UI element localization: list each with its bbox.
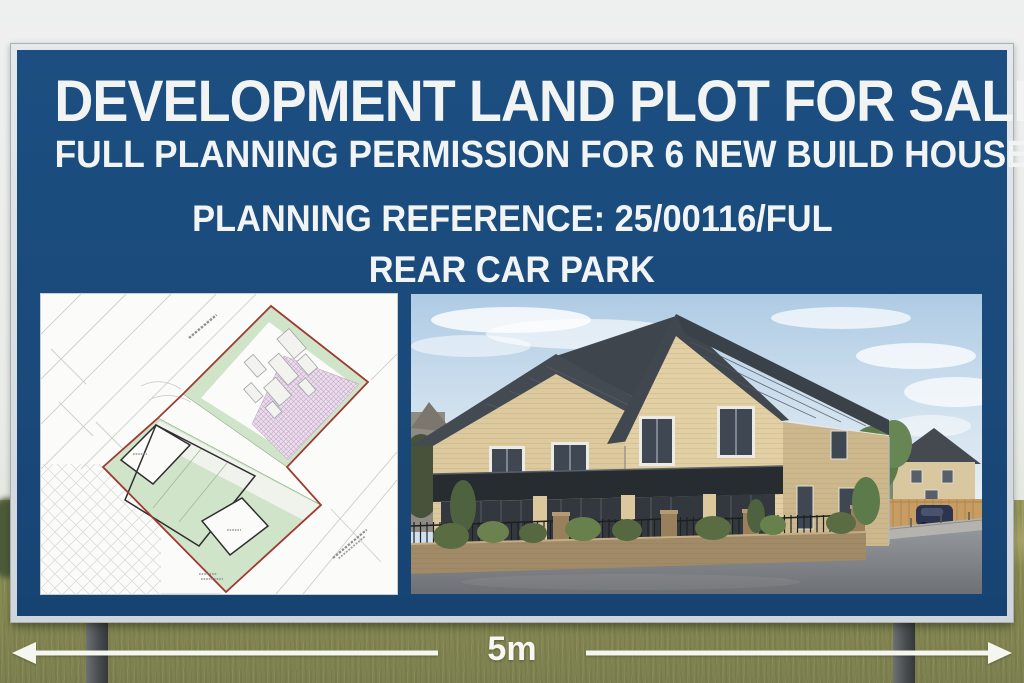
house-photo-image — [411, 294, 982, 594]
scale-label: 5m — [0, 630, 1024, 669]
scene: DEVELOPMENT LAND PLOT FOR SALE FULL PLAN… — [0, 0, 1024, 683]
house-render-svg — [411, 294, 982, 594]
site-plan-svg — [41, 294, 397, 594]
sign-panel: DEVELOPMENT LAND PLOT FOR SALE FULL PLAN… — [17, 50, 1007, 616]
sale-signboard: DEVELOPMENT LAND PLOT FOR SALE FULL PLAN… — [10, 43, 1014, 623]
headline-primary: DEVELOPMENT LAND PLOT FOR SALE — [17, 68, 1007, 135]
site-plan-image — [41, 294, 397, 594]
planning-reference: PLANNING REFERENCE: 25/00116/FUL — [17, 198, 1007, 240]
headline-secondary: FULL PLANNING PERMISSION FOR 6 NEW BUILD… — [17, 134, 1007, 177]
location-line: REAR CAR PARK — [17, 249, 1007, 291]
